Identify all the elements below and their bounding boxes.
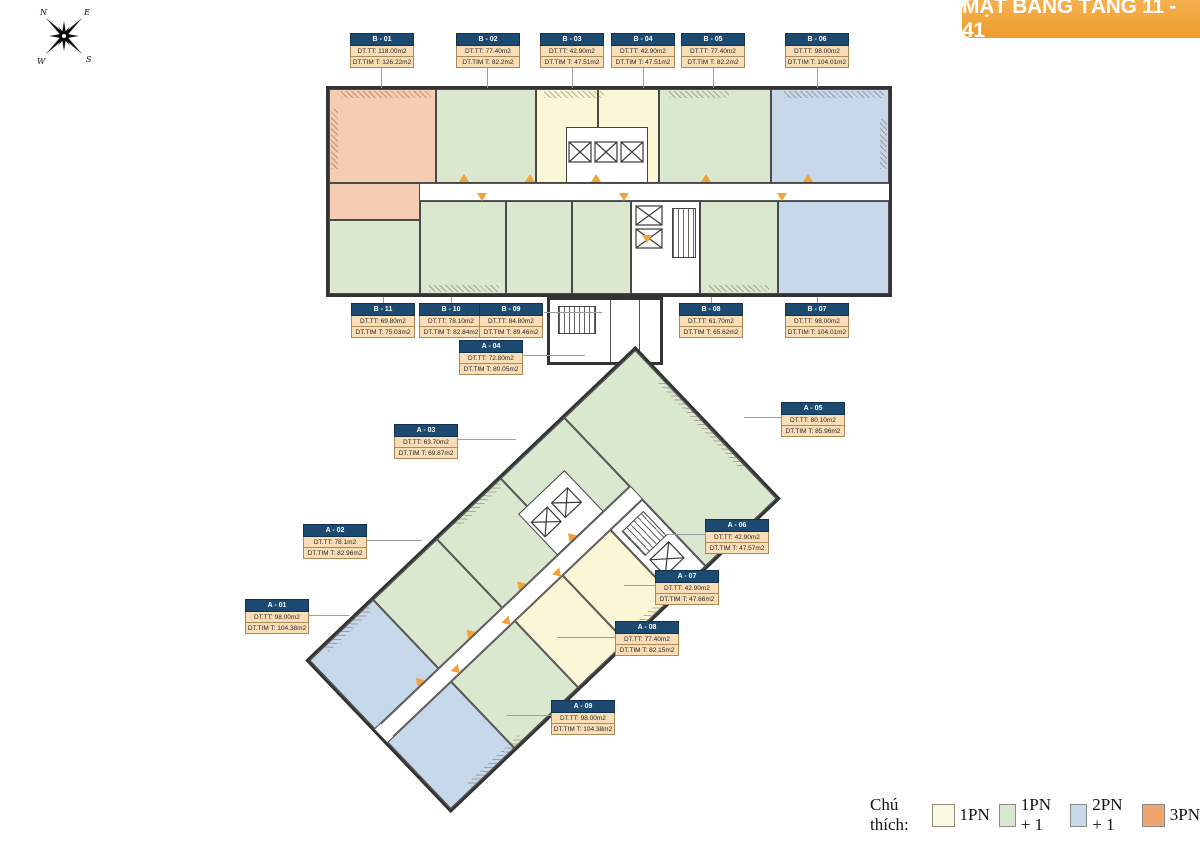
unit-area-net: DT.TT: 61.70m2 [679, 316, 743, 327]
leader-line [309, 615, 349, 616]
unit-area-gross: DT.TIM T: 82.15m2 [615, 645, 679, 656]
unit-area-gross: DT.TIM T: 85.96m2 [781, 426, 845, 437]
legend-swatch-2pn-1 [1070, 804, 1087, 827]
unit-label-a06: A - 06 DT.TT: 42.90m2 DT.TIM T: 47.57m2 [705, 519, 769, 554]
unit-id: B - 10 [419, 303, 483, 316]
balcony-hatch [709, 285, 769, 292]
unit-area-gross: DT.TIM T: 104.01m2 [785, 57, 849, 68]
unit-area-net: DT.TT: 42.90m2 [611, 46, 675, 57]
unit-id: A - 02 [303, 524, 367, 537]
unit-area-net: DT.TT: 118.00m2 [350, 46, 414, 57]
floor-plan-page: N E W S MẶT BẰNG TẦNG 11 - 41 [0, 0, 1200, 849]
legend-item-1pn: 1PN [932, 804, 990, 827]
unit-region-b11-west [329, 220, 420, 294]
leader-line [624, 585, 656, 586]
leader-line [744, 417, 782, 418]
unit-id: B - 04 [611, 33, 675, 46]
unit-area-gross: DT.TIM T: 82.96m2 [303, 548, 367, 559]
unit-label-a07: A - 07 DT.TT: 42.90m2 DT.TIM T: 47.66m2 [655, 570, 719, 605]
leader-line [544, 312, 602, 313]
unit-id: B - 06 [785, 33, 849, 46]
unit-id: A - 03 [394, 424, 458, 437]
unit-area-net: DT.TT: 80.10m2 [781, 415, 845, 426]
legend-swatch-1pn [932, 804, 955, 827]
unit-region-b05 [659, 89, 771, 183]
unit-region-b01-lower [329, 183, 420, 220]
compass-icon: N E W S [26, 2, 102, 70]
legend-title: Chú thích: [870, 795, 923, 835]
unit-region-b08 [700, 201, 778, 294]
unit-area-net: DT.TT: 78.10m2 [419, 316, 483, 327]
unit-id: A - 04 [459, 340, 523, 353]
unit-area-gross: DT.TIM T: 69.87m2 [394, 448, 458, 459]
unit-area-net: DT.TT: 42.90m2 [540, 46, 604, 57]
balcony-hatch [669, 91, 729, 98]
stair-core [631, 201, 700, 294]
unit-id: A - 07 [655, 570, 719, 583]
unit-area-net: DT.TT: 98.00m2 [785, 46, 849, 57]
elevator-icon [634, 204, 666, 252]
leader-line [458, 439, 516, 440]
compass-w-label: W [37, 57, 46, 66]
unit-id: A - 05 [781, 402, 845, 415]
unit-area-gross: DT.TIM T: 47.66m2 [655, 594, 719, 605]
unit-area-net: DT.TT: 77.40m2 [456, 46, 520, 57]
unit-label-b04: B - 04 DT.TT: 42.90m2 DT.TIM T: 47.51m2 [611, 33, 675, 68]
unit-region-b07 [778, 201, 889, 294]
elevator-core [566, 127, 648, 183]
unit-label-b01: B - 01 DT.TT: 118.00m2 DT.TIM T: 126.22m… [350, 33, 414, 68]
unit-area-gross: DT.TIM T: 75.03m2 [351, 327, 415, 338]
unit-area-gross: DT.TIM T: 47.57m2 [705, 543, 769, 554]
legend-label-2pn-1: 2PN + 1 [1092, 795, 1133, 835]
unit-area-gross: DT.TIM T: 126.22m2 [350, 57, 414, 68]
unit-region-b11 [420, 201, 506, 294]
unit-region-b10 [506, 201, 572, 294]
unit-id: B - 02 [456, 33, 520, 46]
unit-area-gross: DT.TIM T: 80.05m2 [459, 364, 523, 375]
unit-label-a09: A - 09 DT.TT: 98.00m2 DT.TIM T: 104.38m2 [551, 700, 615, 735]
unit-area-gross: DT.TIM T: 65.62m2 [679, 327, 743, 338]
unit-label-b08: B - 08 DT.TT: 61.70m2 DT.TIM T: 65.62m2 [679, 303, 743, 338]
balcony-hatch [784, 91, 884, 98]
leader-line [572, 67, 573, 88]
leader-line [557, 637, 616, 638]
balcony-hatch [341, 91, 431, 98]
leader-line [507, 715, 552, 716]
unit-label-b11: B - 11 DT.TT: 69.80m2 DT.TIM T: 75.03m2 [351, 303, 415, 338]
unit-label-a08: A - 08 DT.TT: 77.40m2 DT.TIM T: 82.15m2 [615, 621, 679, 656]
unit-area-net: DT.TT: 78.1m2 [303, 537, 367, 548]
unit-area-gross: DT.TIM T: 82.2m2 [456, 57, 520, 68]
unit-area-gross: DT.TIM T: 104.01m2 [785, 327, 849, 338]
balcony-hatch [331, 109, 338, 169]
unit-area-net: DT.TT: 42.90m2 [705, 532, 769, 543]
legend: Chú thích: 1PN 1PN + 1 2PN + 1 3PN [870, 800, 1200, 830]
leader-line [367, 540, 422, 541]
unit-region-b06 [771, 89, 889, 183]
unit-label-b09: B - 09 DT.TT: 84.80m2 DT.TIM T: 89.46m2 [479, 303, 543, 338]
unit-area-net: DT.TT: 98.00m2 [785, 316, 849, 327]
unit-id: B - 05 [681, 33, 745, 46]
unit-id: A - 09 [551, 700, 615, 713]
legend-label-3pn: 3PN [1170, 805, 1200, 825]
unit-area-gross: DT.TIM T: 82.84m2 [419, 327, 483, 338]
leader-line [487, 67, 488, 88]
elevator-icon [567, 128, 645, 178]
direction-triangle-icon [803, 174, 813, 182]
unit-area-gross: DT.TIM T: 82.2m2 [681, 57, 745, 68]
building-b [326, 86, 892, 297]
direction-triangle-icon [642, 235, 652, 243]
unit-label-a03: A - 03 DT.TT: 63.70m2 DT.TIM T: 69.87m2 [394, 424, 458, 459]
unit-label-a05: A - 05 DT.TT: 80.10m2 DT.TIM T: 85.96m2 [781, 402, 845, 437]
direction-triangle-icon [619, 193, 629, 201]
unit-area-net: DT.TT: 77.40m2 [681, 46, 745, 57]
corridor-b [420, 183, 889, 201]
page-title: MẶT BẰNG TẦNG 11 - 41 [962, 0, 1200, 38]
legend-item-1pn-1: 1PN + 1 [999, 795, 1062, 835]
unit-label-b07: B - 07 DT.TT: 98.00m2 DT.TIM T: 104.01m2 [785, 303, 849, 338]
unit-id: B - 08 [679, 303, 743, 316]
direction-triangle-icon [777, 193, 787, 201]
direction-triangle-icon [525, 174, 535, 182]
direction-triangle-icon [701, 174, 711, 182]
stairs-icon [558, 306, 596, 334]
legend-item-3pn: 3PN [1142, 804, 1200, 827]
compass-s-label: S [86, 55, 92, 64]
direction-triangle-icon [459, 174, 469, 182]
legend-item-2pn-1: 2PN + 1 [1070, 795, 1133, 835]
unit-id: B - 11 [351, 303, 415, 316]
unit-area-net: DT.TT: 63.70m2 [394, 437, 458, 448]
unit-id: B - 09 [479, 303, 543, 316]
unit-id: B - 07 [785, 303, 849, 316]
unit-area-net: DT.TT: 69.80m2 [351, 316, 415, 327]
unit-area-net: DT.TT: 72.80m2 [459, 353, 523, 364]
leader-line [664, 534, 706, 535]
compass-n-label: N [39, 8, 48, 17]
legend-swatch-3pn [1142, 804, 1165, 827]
unit-area-net: DT.TT: 84.80m2 [479, 316, 543, 327]
legend-swatch-1pn-1 [999, 804, 1016, 827]
leader-line [817, 67, 818, 88]
unit-label-b10: B - 10 DT.TT: 78.10m2 DT.TIM T: 82.84m2 [419, 303, 483, 338]
unit-area-net: DT.TT: 98.00m2 [551, 713, 615, 724]
unit-id: B - 03 [540, 33, 604, 46]
unit-id: A - 06 [705, 519, 769, 532]
unit-area-gross: DT.TIM T: 47.51m2 [611, 57, 675, 68]
unit-label-b02: B - 02 DT.TT: 77.40m2 DT.TIM T: 82.2m2 [456, 33, 520, 68]
unit-label-a04: A - 04 DT.TT: 72.80m2 DT.TIM T: 80.05m2 [459, 340, 523, 375]
balcony-hatch [429, 285, 499, 292]
unit-id: A - 01 [245, 599, 309, 612]
stairs-icon [672, 208, 696, 258]
unit-area-gross: DT.TIM T: 104.38m2 [245, 623, 309, 634]
leader-line [643, 67, 644, 88]
unit-region-b02 [436, 89, 536, 183]
balcony-hatch [544, 91, 604, 98]
unit-label-b05: B - 05 DT.TT: 77.40m2 DT.TIM T: 82.2m2 [681, 33, 745, 68]
unit-area-net: DT.TT: 77.40m2 [615, 634, 679, 645]
direction-triangle-icon [477, 193, 487, 201]
unit-id: B - 01 [350, 33, 414, 46]
leader-line [523, 355, 585, 356]
unit-area-net: DT.TT: 98.00m2 [245, 612, 309, 623]
unit-label-a02: A - 02 DT.TT: 78.1m2 DT.TIM T: 82.96m2 [303, 524, 367, 559]
unit-label-b03: B - 03 DT.TT: 42.90m2 DT.TIM T: 47.51m2 [540, 33, 604, 68]
unit-area-gross: DT.TIM T: 89.46m2 [479, 327, 543, 338]
leader-line [381, 67, 382, 88]
legend-label-1pn-1: 1PN + 1 [1021, 795, 1062, 835]
legend-label-1pn: 1PN [960, 805, 990, 825]
unit-region-b01 [329, 89, 436, 183]
unit-area-net: DT.TT: 42.90m2 [655, 583, 719, 594]
leader-line [713, 67, 714, 88]
unit-area-gross: DT.TIM T: 47.51m2 [540, 57, 604, 68]
unit-id: A - 08 [615, 621, 679, 634]
compass-e-label: E [83, 8, 90, 17]
unit-area-gross: DT.TIM T: 104.38m2 [551, 724, 615, 735]
direction-triangle-icon [591, 174, 601, 182]
unit-region-b09 [572, 201, 631, 294]
unit-label-b06: B - 06 DT.TT: 98.00m2 DT.TIM T: 104.01m2 [785, 33, 849, 68]
unit-label-a01: A - 01 DT.TT: 98.00m2 DT.TIM T: 104.38m2 [245, 599, 309, 634]
balcony-hatch [880, 119, 887, 169]
